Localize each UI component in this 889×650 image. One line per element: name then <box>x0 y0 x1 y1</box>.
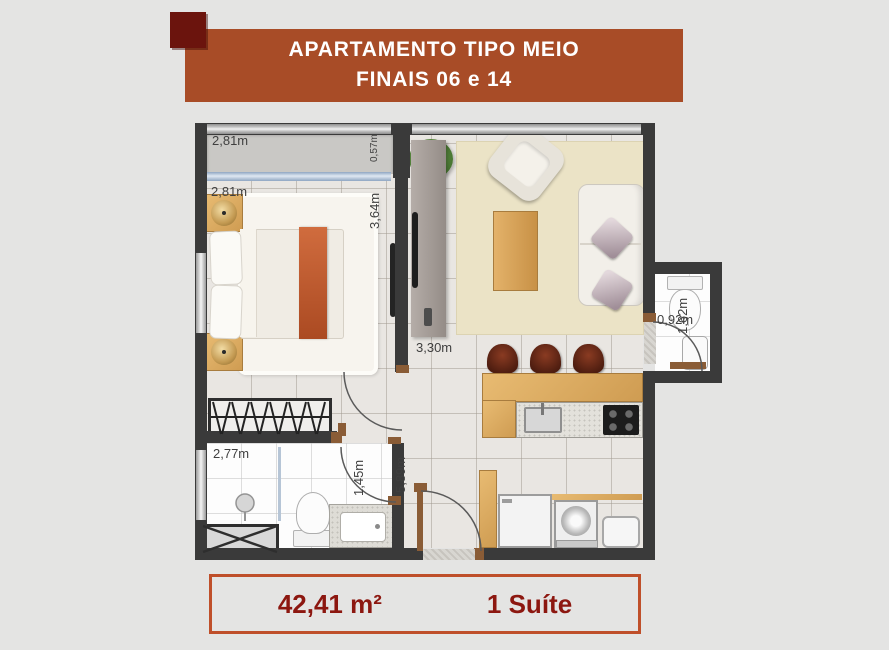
title-line1: APARTAMENTO TIPO MEIO <box>185 35 683 65</box>
shower-head-icon <box>236 494 254 521</box>
title-line2: FINAIS 06 e 14 <box>185 65 683 95</box>
dim-bedroom-width: 2,81m <box>211 184 247 199</box>
closet-hangers-icon <box>211 402 329 434</box>
dim-balcony-width: 2,81m <box>212 133 248 148</box>
floor-plan-page: APARTAMENTO TIPO MEIO FINAIS 06 e 14 <box>0 0 889 650</box>
dim-bathroom-door: 1,45m <box>351 460 366 496</box>
dim-bedroom-length: 3,64m <box>367 193 382 229</box>
bedroom-door-arc <box>344 372 402 430</box>
dim-living-width: 3,30m <box>416 340 452 355</box>
bathroom-door-arc <box>341 447 396 502</box>
shaft-x-icon <box>203 526 277 552</box>
title-banner: APARTAMENTO TIPO MEIO FINAIS 06 e 14 <box>185 29 683 102</box>
dim-living-length: 5,89m <box>393 457 408 493</box>
dim-lavabo-width: 0,92m <box>657 312 693 327</box>
info-box: 42,41 m² 1 Suíte <box>209 574 641 634</box>
suite-value: 1 Suíte <box>487 589 572 620</box>
area-value: 42,41 m² <box>278 589 382 620</box>
decorative-square <box>170 12 206 48</box>
entrance-door-arc <box>421 491 481 551</box>
dim-balcony-depth: 0,57m <box>369 134 380 162</box>
plan-linework <box>195 123 722 560</box>
dim-bathroom-width: 2,77m <box>213 446 249 461</box>
